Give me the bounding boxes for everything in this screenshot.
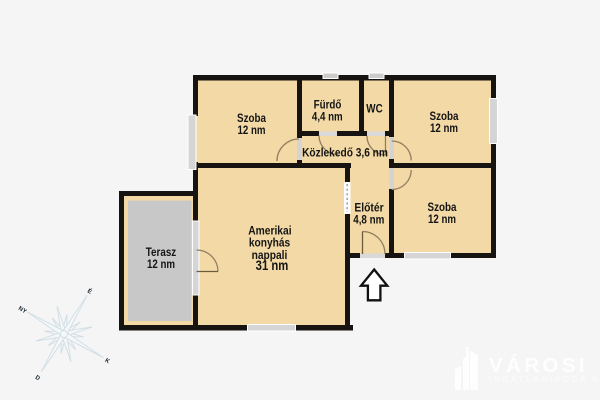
svg-text:12 nm: 12 nm [428,213,456,226]
svg-text:12 nm: 12 nm [237,124,265,137]
svg-text:Közlekedő 3,6 nm: Közlekedő 3,6 nm [302,147,388,160]
svg-text:12 nm: 12 nm [430,122,458,135]
svg-text:INGATLANIRODA KF: INGATLANIRODA KF [489,375,600,384]
svg-text:VÁROSI: VÁROSI [489,354,588,377]
svg-text:konyhás: konyhás [249,237,290,250]
svg-text:4,4 nm: 4,4 nm [312,111,343,124]
svg-text:4,8 nm: 4,8 nm [353,214,384,227]
svg-text:Amerikai: Amerikai [248,225,291,238]
svg-text:31 nm: 31 nm [256,258,289,273]
svg-text:WC: WC [366,103,382,116]
svg-text:Szoba: Szoba [237,112,267,125]
svg-text:12 nm: 12 nm [147,258,175,271]
